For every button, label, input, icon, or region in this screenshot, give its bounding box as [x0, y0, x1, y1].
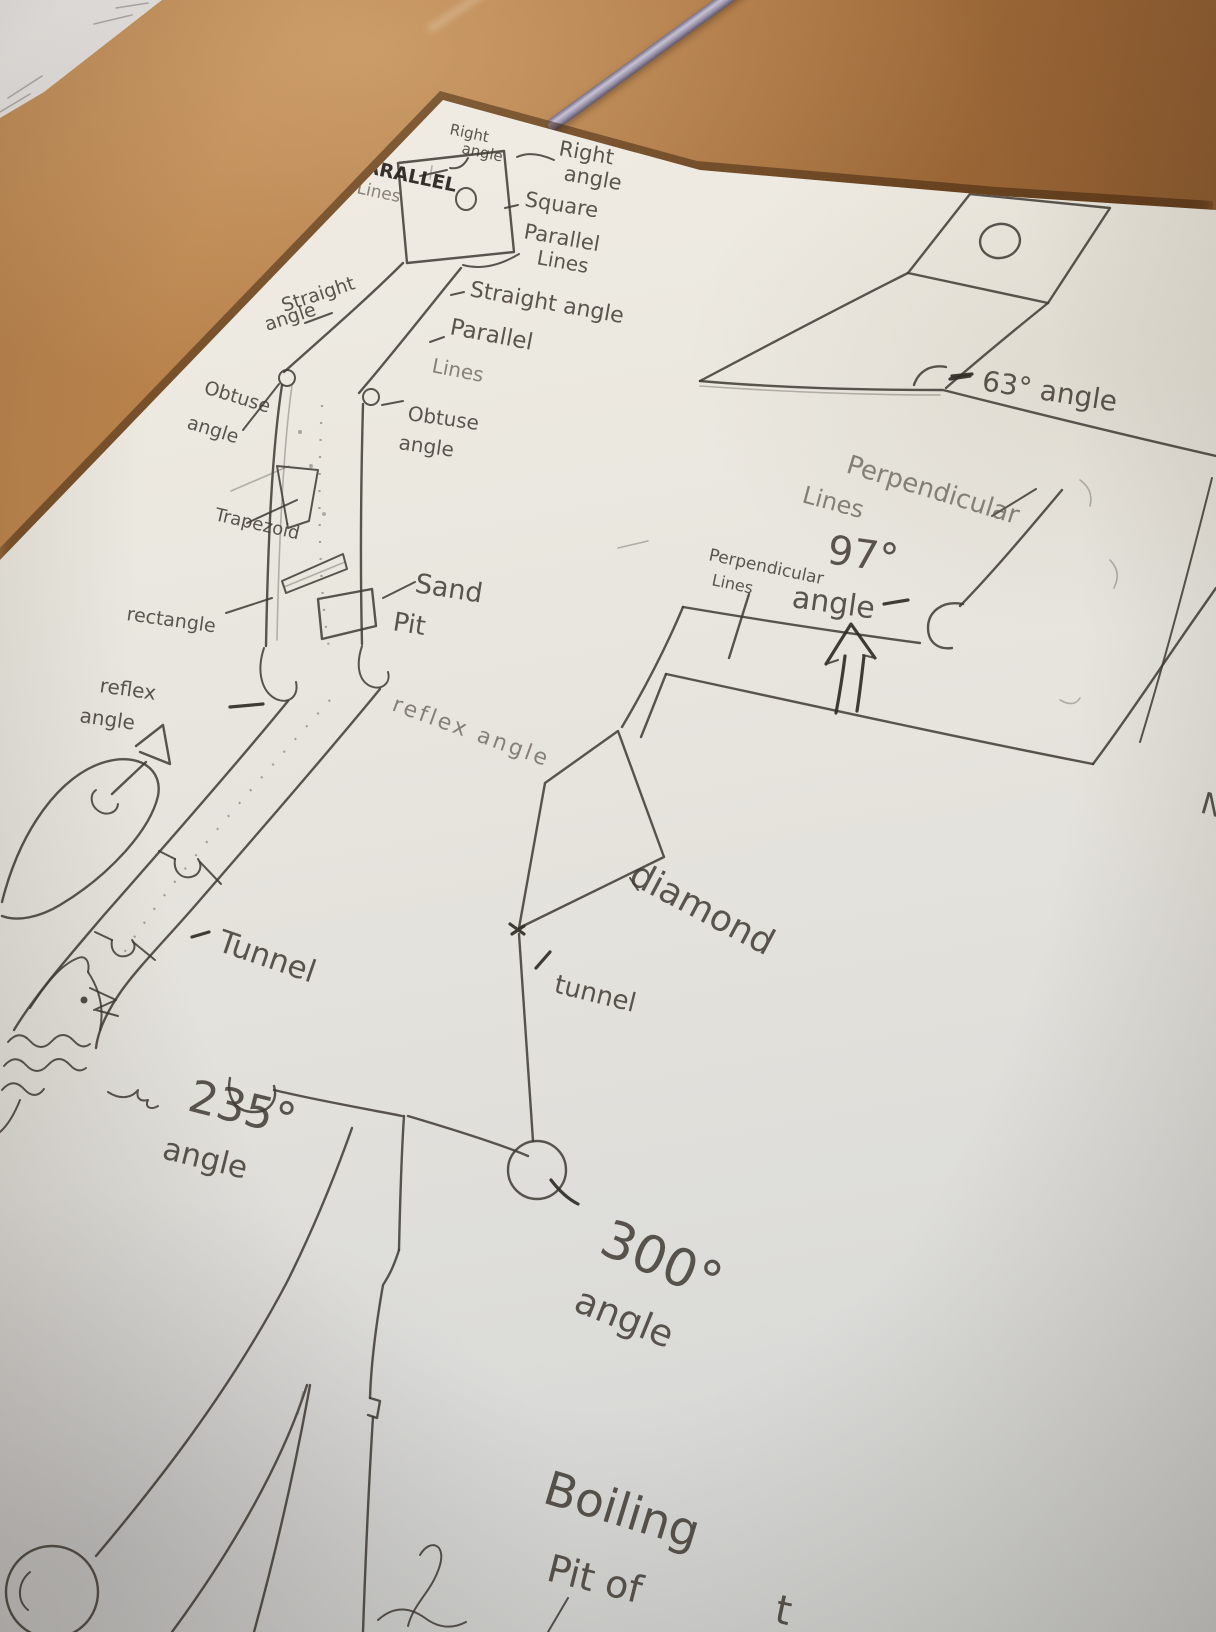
ramp-top-edge [700, 273, 908, 381]
obtuse-vertex-right [363, 389, 379, 405]
label-diamond: diamond [623, 854, 781, 964]
creature-eye [81, 997, 88, 1004]
label-boiling-3: t [771, 1587, 796, 1632]
label-obtuse-left-1: Obtuse [202, 377, 274, 418]
main-channel [618, 478, 1216, 764]
label-63: 63° angle [980, 364, 1120, 418]
arrow-shaft-left [836, 656, 845, 713]
kite-diamond [510, 607, 683, 968]
label-boiling-1: Boiling [537, 1461, 706, 1560]
arrow-shaft-right [857, 656, 864, 711]
label-edge-letter: N [1197, 786, 1216, 826]
label-parallel-mid-2: Lines [430, 353, 486, 387]
pen [545, 0, 747, 133]
spike-right [254, 1385, 310, 1632]
label-reflex-right: reflex angle [389, 692, 554, 772]
squiggle-j [408, 1545, 441, 1626]
label-right-angle-right-2: angle [562, 161, 624, 195]
label-perpendicular-big-2: Lines [799, 481, 867, 524]
pencil-drawing: Right angle Right angle Square Parallel … [0, 0, 1216, 1632]
label-obtuse-right-1: Obtuse [406, 401, 480, 435]
label-perpendicular-small-2: Lines [710, 570, 755, 597]
label-sand-pit-1: Sand [413, 568, 485, 609]
tunnel-small-tick [536, 952, 550, 968]
pencil-glare [425, 0, 641, 34]
ramp-bottom-edge [700, 381, 1216, 456]
right-structure [700, 194, 1216, 516]
bottom-descender [6, 1128, 568, 1632]
label-tunnel-small: tunnel [551, 970, 639, 1019]
squiggle-wave [378, 1609, 466, 1626]
sand-pit-shape [318, 589, 376, 639]
pinch-scribble [510, 924, 524, 934]
balloon-arrowhead [136, 725, 170, 764]
rectangle-shape [282, 554, 347, 593]
label-parallel-mid-1: Parallel [448, 314, 535, 356]
top-right-box [908, 194, 1110, 303]
rectangle-pointer [226, 598, 272, 613]
label-trapezoid: Trapezoid [212, 504, 302, 544]
vertex-circle [508, 1141, 566, 1199]
sand-pit-pointer [383, 582, 415, 598]
scrap-paper-marks [0, 0, 200, 140]
label-reflex-left-2: angle [78, 703, 136, 734]
reflex-bump-left [260, 648, 296, 701]
scrap-paper [0, 0, 200, 140]
label-obtuse-right-2: angle [397, 430, 455, 461]
label-97-2: angle [790, 580, 877, 626]
angle-63-arc [914, 366, 946, 385]
label-perpendicular-big-1: Perpendicular [843, 450, 1023, 531]
reflex-bend [14, 646, 389, 1048]
reflex-bump-right [359, 646, 389, 688]
balloon-arrow [112, 762, 146, 794]
label-235-1: 235° [183, 1069, 301, 1147]
label-reflex-left-1: reflex [98, 673, 157, 705]
tunnel-dash [192, 932, 209, 937]
label-tunnel-main: Tunnel [212, 923, 320, 990]
box-hole [977, 221, 1022, 261]
creature-doodle [0, 957, 158, 1132]
labels: Right angle Right angle Square Parallel … [78, 120, 1216, 1632]
angle-97-arc [928, 603, 963, 648]
label-97-1: 97° [825, 527, 902, 582]
label-235-2: angle [159, 1131, 251, 1187]
balloon-doodle [2, 725, 170, 919]
label-square: Square [523, 187, 600, 222]
square-hole [456, 188, 476, 210]
label-sand-pit-2: Pit [391, 607, 428, 642]
label-boiling-2: Pit of [543, 1546, 649, 1612]
perpendicular-tick [729, 594, 749, 658]
spike-left [172, 1385, 307, 1632]
obtuse-vertex-left [279, 370, 295, 386]
label-obtuse-left-2: angle [185, 412, 242, 448]
reflex-left-dash [230, 704, 263, 707]
photo-of-desk: Right angle Right angle Square Parallel … [0, 0, 1216, 1632]
label-rectangle: rectangle [125, 603, 217, 637]
